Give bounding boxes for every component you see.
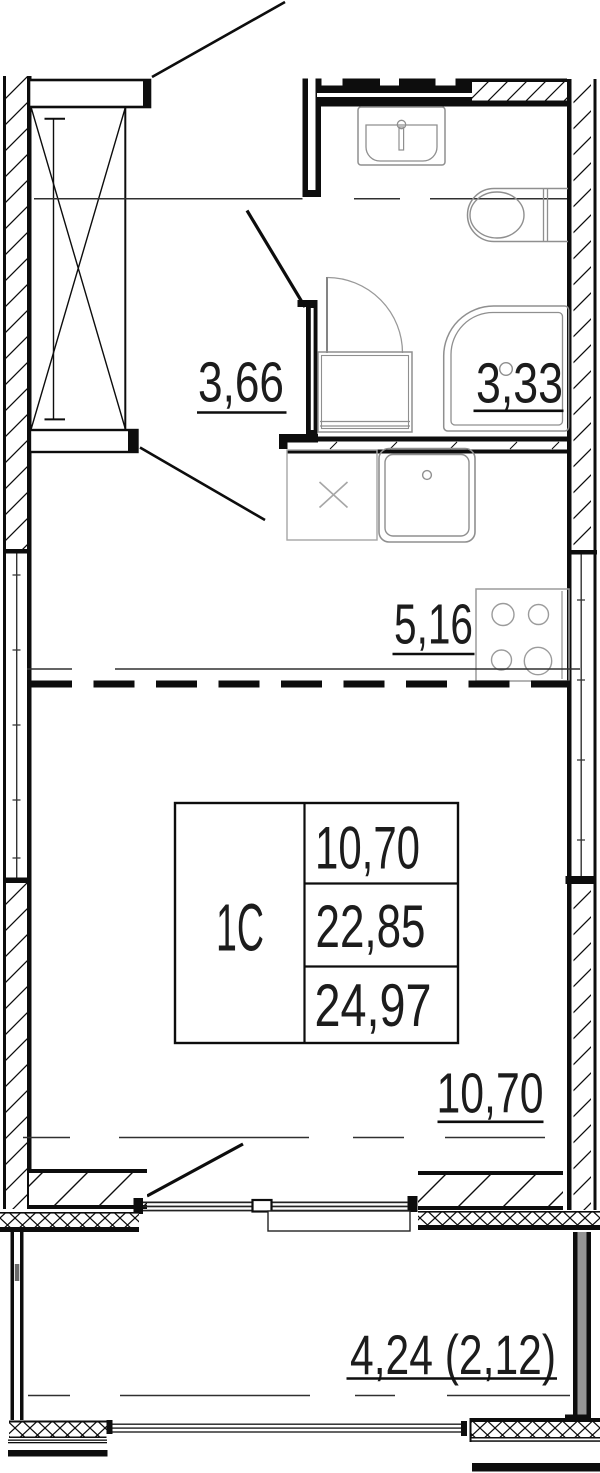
svg-text:4,24 (2,12): 4,24 (2,12) [350,1324,556,1386]
svg-text:3,33: 3,33 [476,352,563,416]
svg-text:10,70: 10,70 [315,814,420,882]
svg-text:3,66: 3,66 [198,351,284,415]
svg-text:1С: 1С [216,891,264,966]
svg-text:22,85: 22,85 [316,892,426,960]
svg-text:24,97: 24,97 [315,971,432,1039]
svg-text:5,16: 5,16 [394,593,473,657]
svg-text:10,70: 10,70 [437,1062,544,1126]
